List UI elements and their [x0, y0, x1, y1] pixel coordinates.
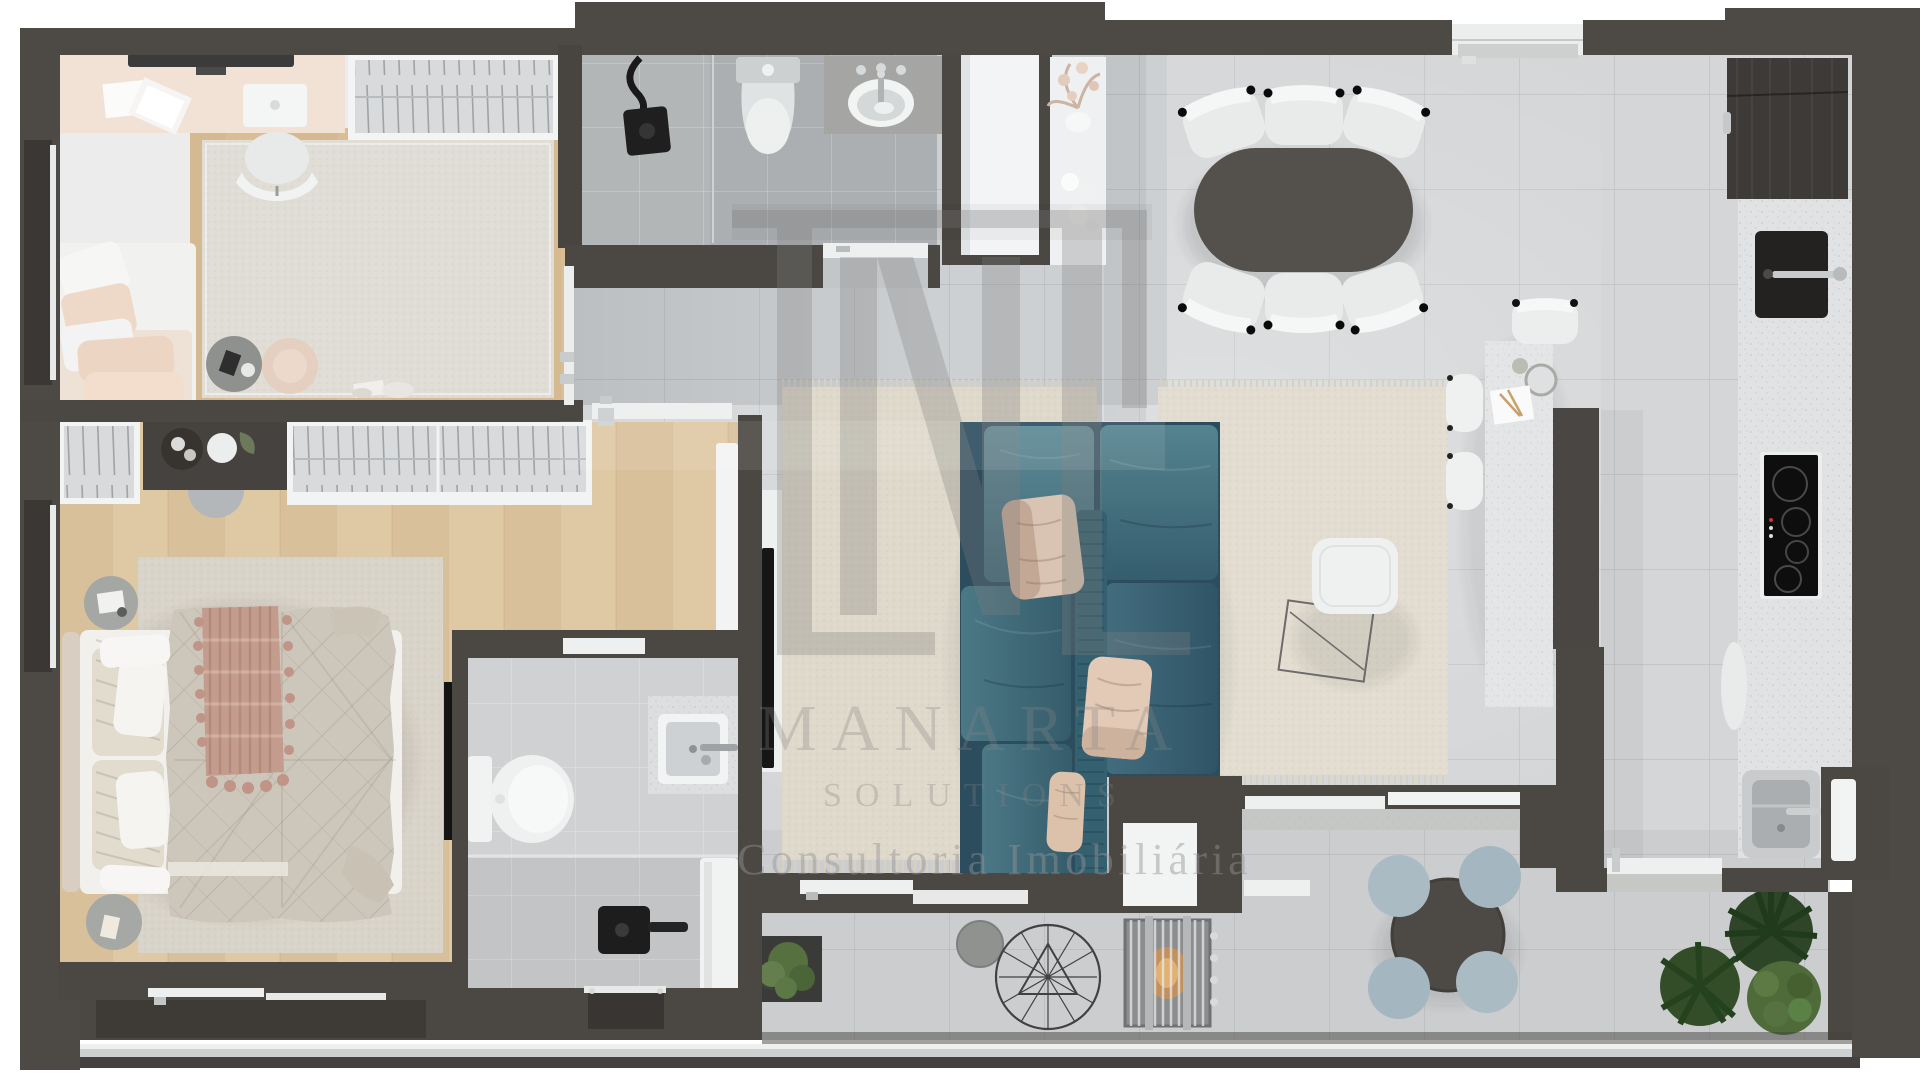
svg-text:SOLUTIONS: SOLUTIONS: [823, 777, 1129, 814]
svg-text:Consultoria Imobiliária: Consultoria Imobiliária: [737, 835, 1252, 884]
svg-text:MANARTA: MANARTA: [758, 692, 1187, 765]
